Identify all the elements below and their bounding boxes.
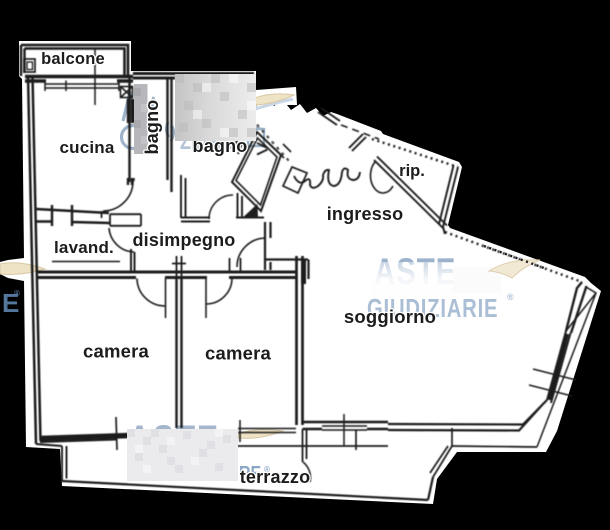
svg-text:balcone: balcone — [41, 50, 105, 68]
svg-text:ingresso: ingresso — [327, 204, 404, 224]
svg-text:rip.: rip. — [399, 162, 425, 180]
svg-text:bagno: bagno — [142, 100, 162, 155]
svg-text:®: ® — [507, 292, 514, 302]
svg-text:terrazzo: terrazzo — [240, 467, 311, 487]
svg-text:camera: camera — [83, 341, 150, 362]
svg-text:®: ® — [14, 289, 20, 298]
svg-text:camera: camera — [205, 343, 272, 364]
svg-text:disimpegno: disimpegno — [132, 230, 235, 250]
svg-text:lavand.: lavand. — [54, 238, 114, 257]
svg-text:soggiorno: soggiorno — [344, 306, 436, 327]
svg-text:cucina: cucina — [59, 138, 114, 157]
